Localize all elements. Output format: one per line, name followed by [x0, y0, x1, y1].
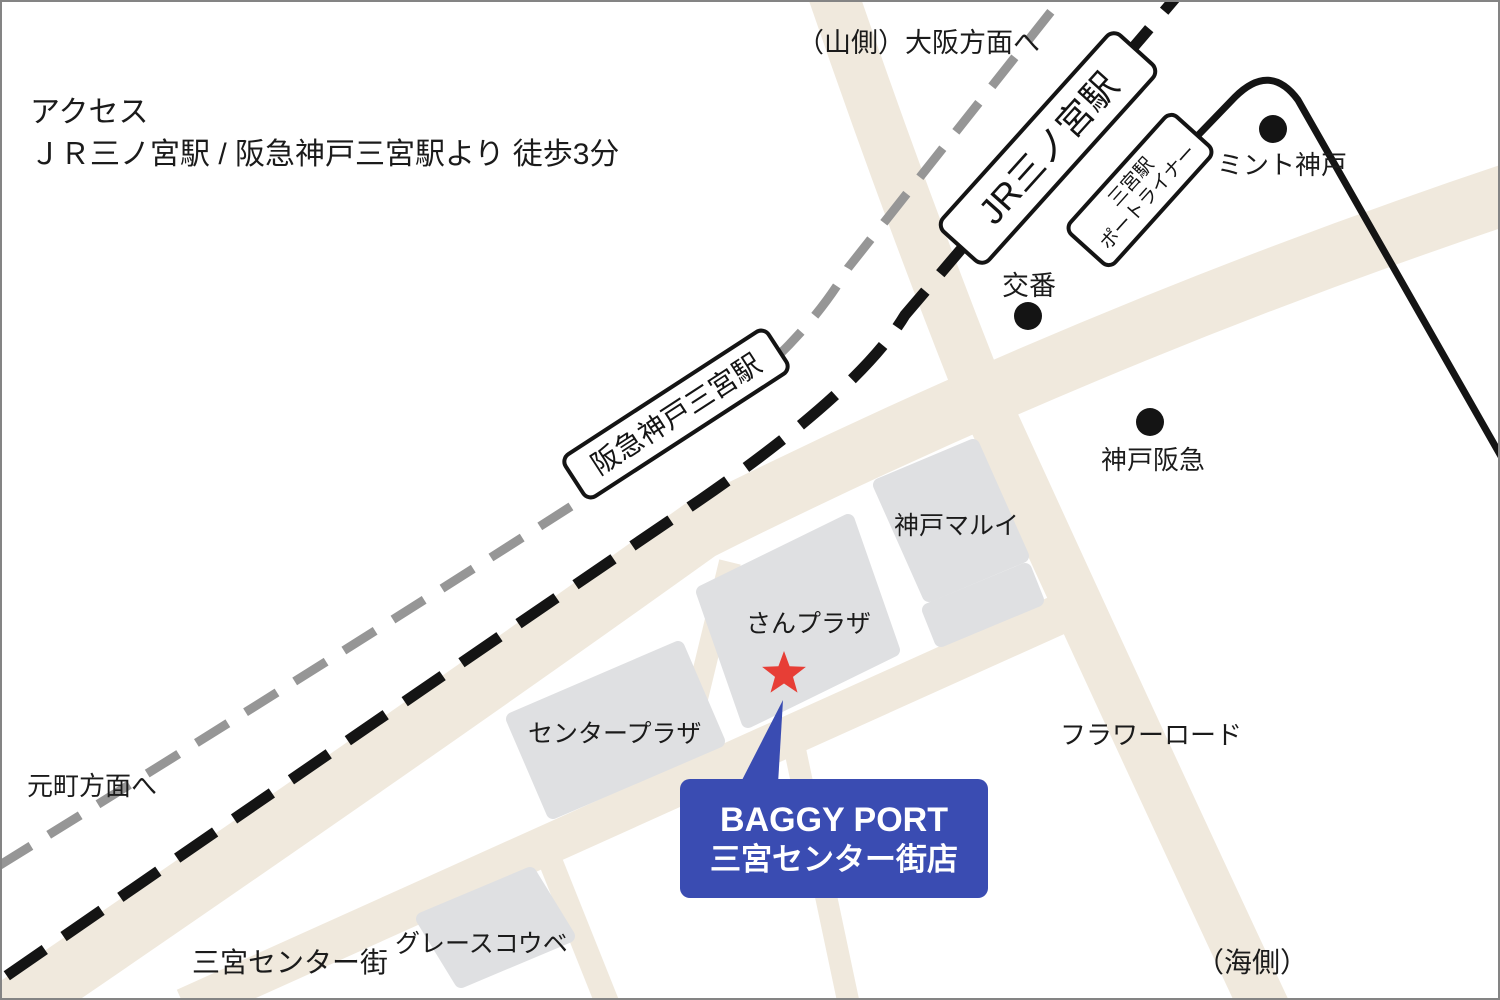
shop-name-line2: 三宮センター街店 — [710, 842, 958, 877]
page-subtitle: ＪＲ三ノ宮駅 / 阪急神戸三宮駅より 徒歩3分 — [30, 138, 619, 171]
to-motomachi-label: 元町方面へ — [27, 771, 157, 801]
shop-name-line1: BAGGY PORT — [720, 801, 948, 839]
flower-road-label: フラワーロード — [1060, 720, 1242, 750]
sanplaza-label: さんプラザ — [746, 610, 871, 638]
center-gai-label: 三宮センター街 — [192, 947, 388, 978]
kobe-hankyu-dot — [1136, 408, 1164, 436]
koban-dot — [1014, 302, 1042, 330]
title-block: アクセス ＪＲ三ノ宮駅 / 阪急神戸三宮駅より 徒歩3分 — [30, 96, 619, 171]
mountain-side-label: （山側） — [797, 28, 905, 58]
map-canvas: JR三ノ宮駅 阪急神戸三宮駅 三宮駅 ポートライナー （山側） 大阪方面へ ミン… — [0, 0, 1500, 1000]
mint-kobe-label: ミント神戸 — [1217, 150, 1347, 180]
grace-kobe-label: グレースコウベ — [395, 930, 568, 958]
page-title: アクセス — [30, 96, 149, 129]
kobe-hankyu-label: 神戸阪急 — [1101, 445, 1205, 475]
center-plaza-label: センタープラザ — [528, 720, 702, 748]
hankyu-station-label: 阪急神戸三宮駅 — [586, 348, 767, 481]
sea-side-label: （海側） — [1196, 947, 1308, 978]
access-map: JR三ノ宮駅 阪急神戸三宮駅 三宮駅 ポートライナー （山側） 大阪方面へ ミン… — [0, 0, 1500, 1000]
mint-kobe-dot — [1259, 115, 1287, 143]
to-osaka-label: 大阪方面へ — [905, 28, 1040, 58]
koban-label: 交番 — [1002, 271, 1056, 301]
kobe-marui-label: 神戸マルイ — [894, 512, 1019, 540]
